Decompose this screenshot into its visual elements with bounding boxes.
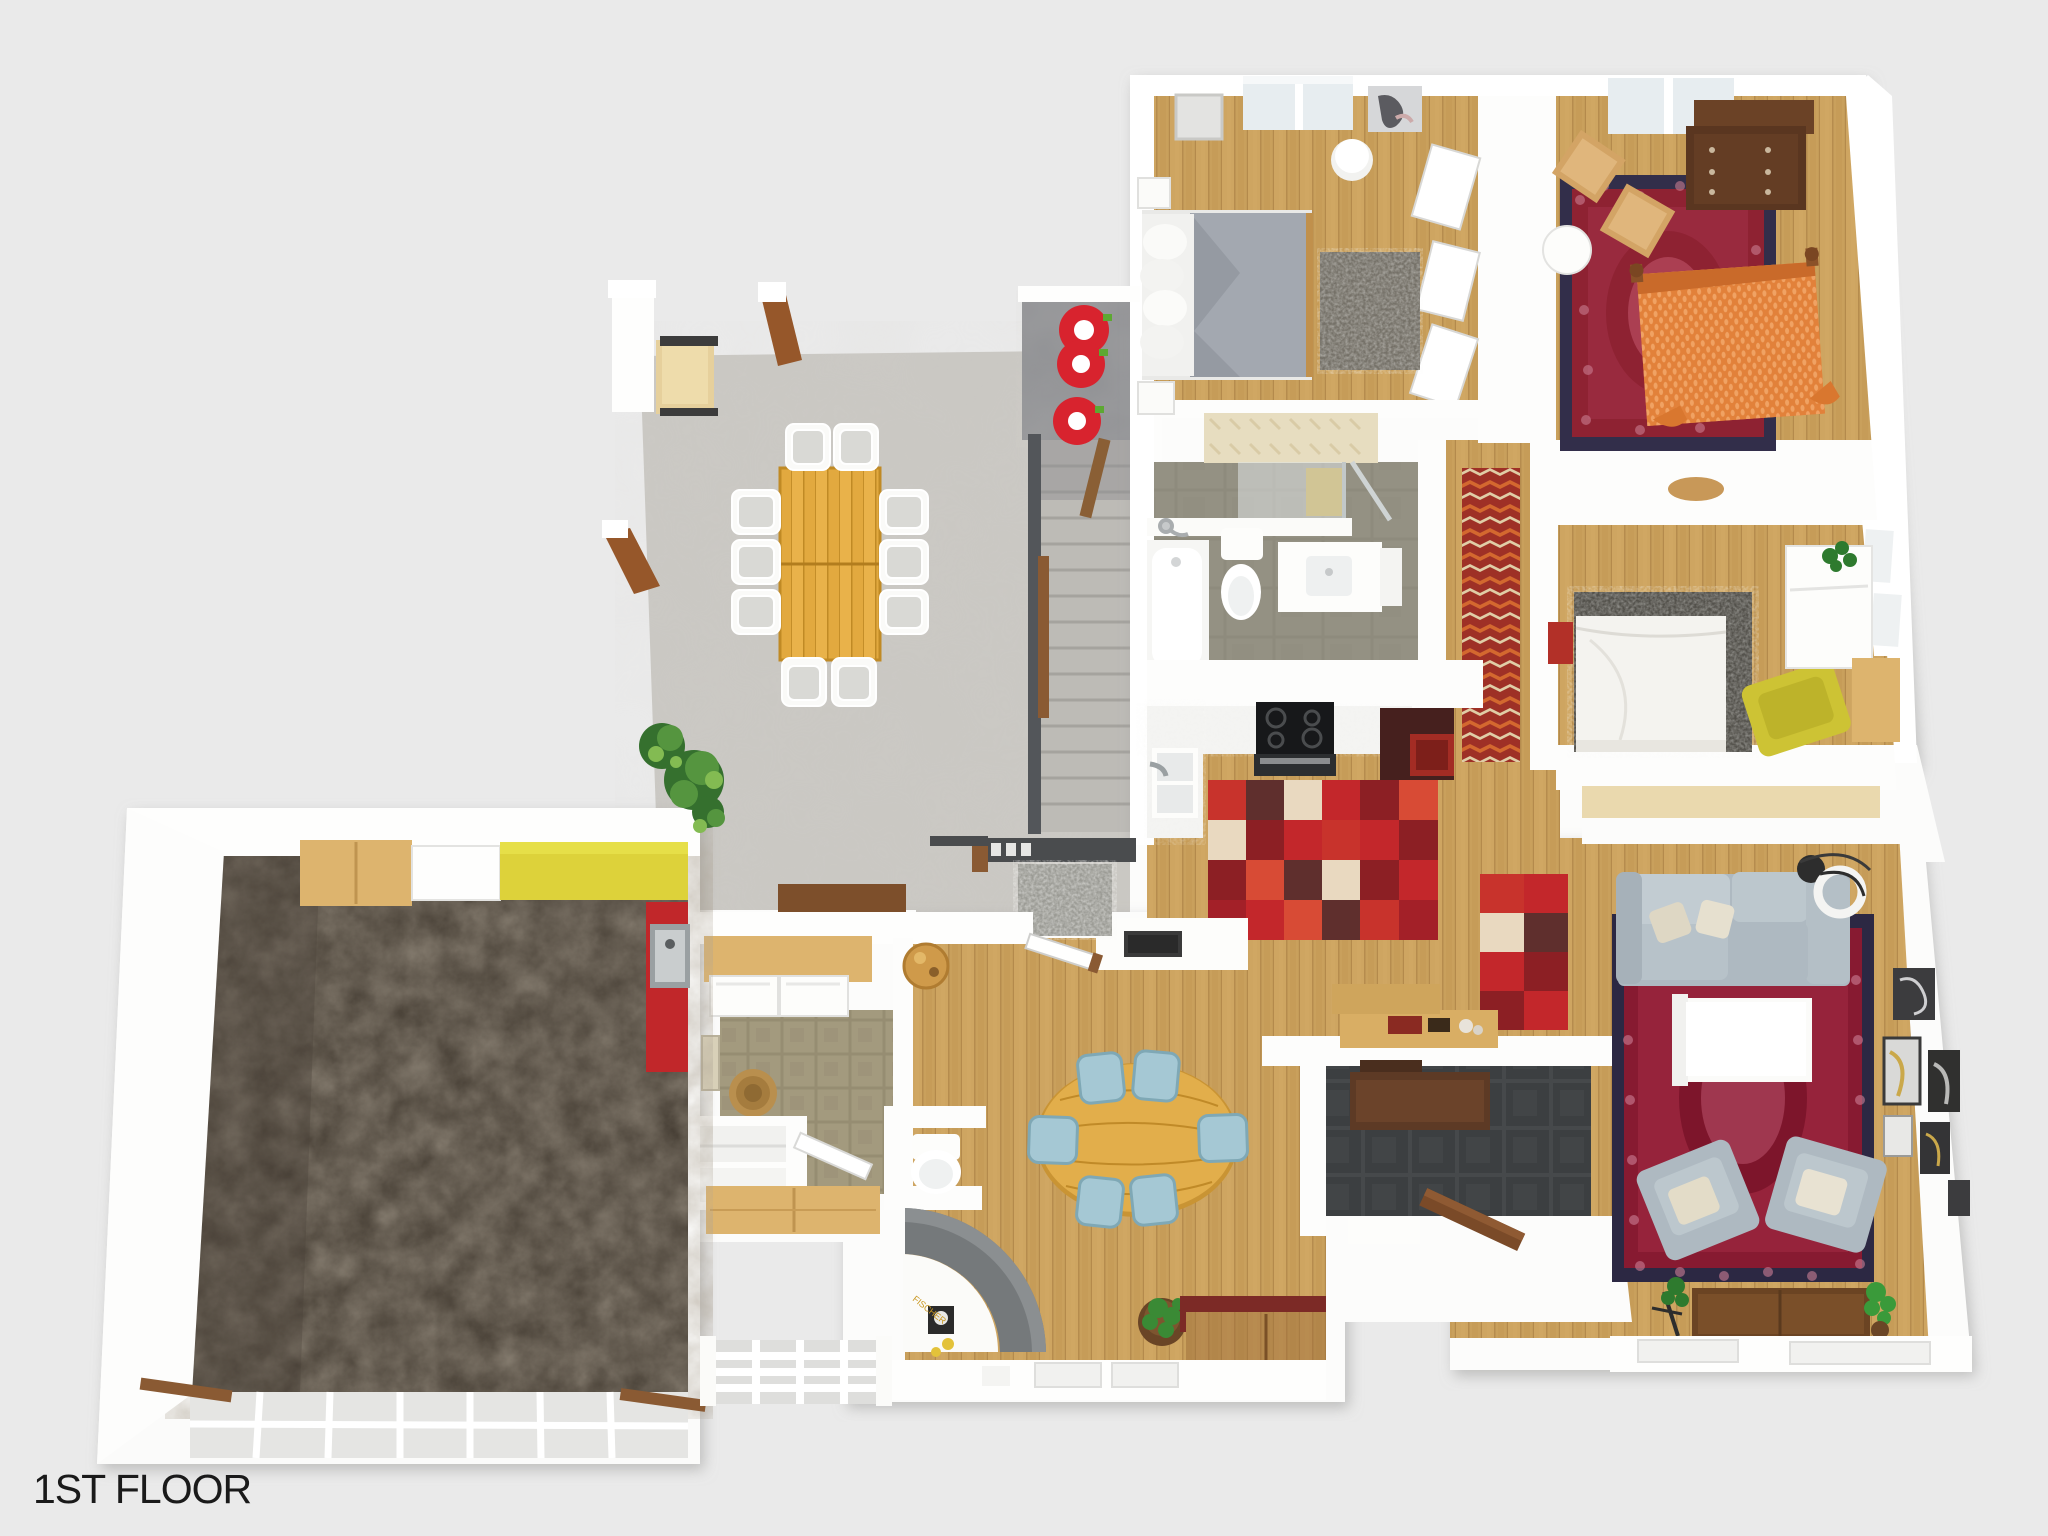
svg-text:1ST FLOOR: 1ST FLOOR [33,1466,251,1512]
